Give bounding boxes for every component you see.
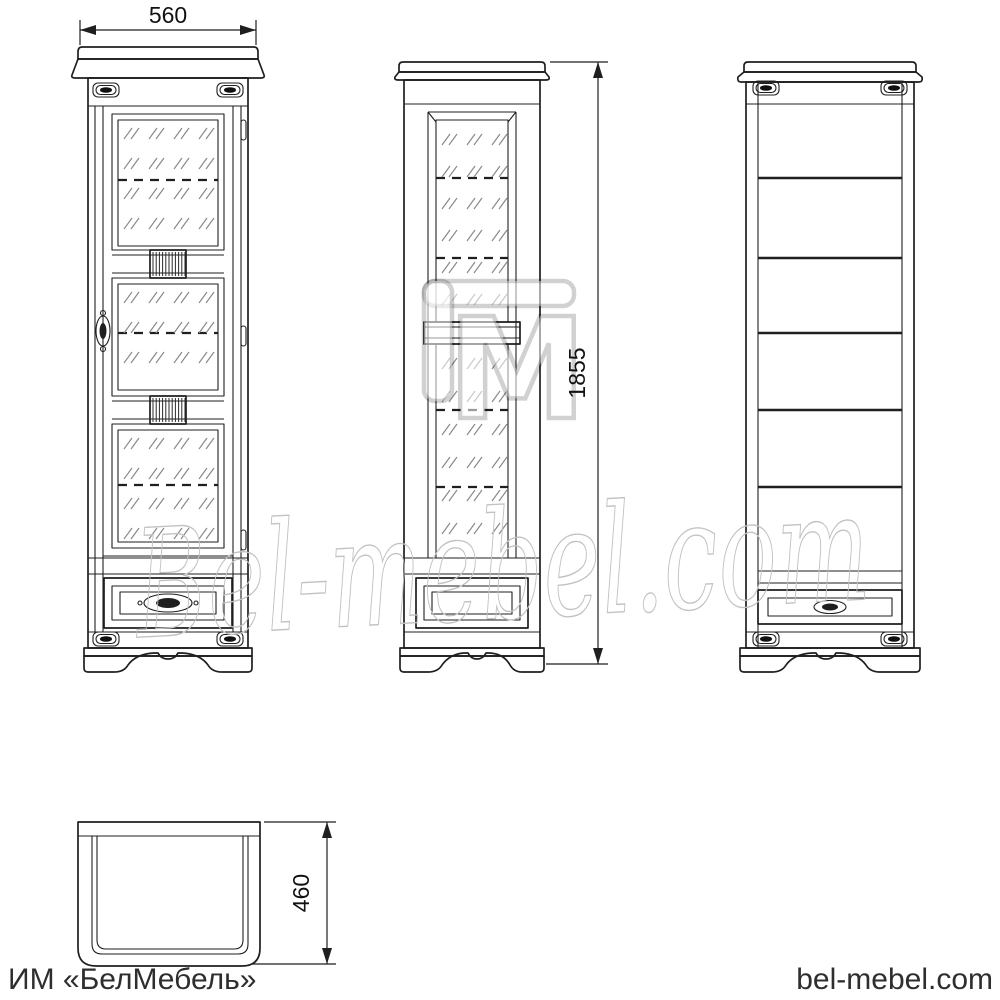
dimension-width-label: 560 (149, 2, 187, 28)
dimension-height-label: 1855 (564, 347, 590, 398)
cabinet-technical-drawing: M Bel-mebel.com 560 1855 460 ИМ «БелМебе… (0, 0, 1000, 1000)
furniture-blueprint-page: M Bel-mebel.com 560 1855 460 ИМ «БелМебе… (0, 0, 1000, 1000)
logo-watermark: M (424, 281, 587, 452)
website-label: bel-mebel.com (796, 963, 993, 996)
manufacturer-label: ИМ «БелМебель» (8, 963, 256, 996)
dimension-depth-label: 460 (288, 874, 314, 912)
